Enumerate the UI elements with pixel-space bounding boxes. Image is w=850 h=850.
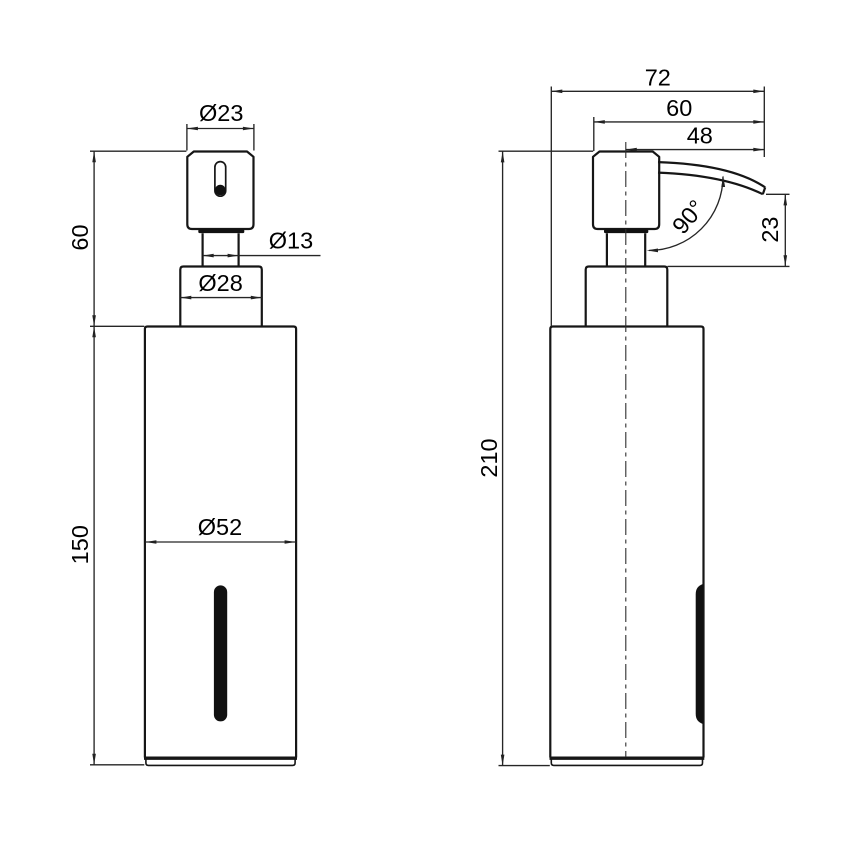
svg-text:150: 150 — [67, 525, 93, 564]
svg-text:60: 60 — [666, 95, 692, 121]
svg-text:48: 48 — [687, 123, 713, 149]
svg-text:23: 23 — [757, 217, 783, 243]
svg-text:Ø23: Ø23 — [199, 100, 243, 126]
svg-text:Ø52: Ø52 — [198, 514, 242, 540]
svg-text:72: 72 — [645, 64, 671, 90]
svg-text:60: 60 — [67, 224, 93, 250]
svg-text:Ø13: Ø13 — [269, 227, 313, 253]
svg-text:Ø28: Ø28 — [198, 270, 242, 296]
svg-text:210: 210 — [476, 438, 502, 477]
